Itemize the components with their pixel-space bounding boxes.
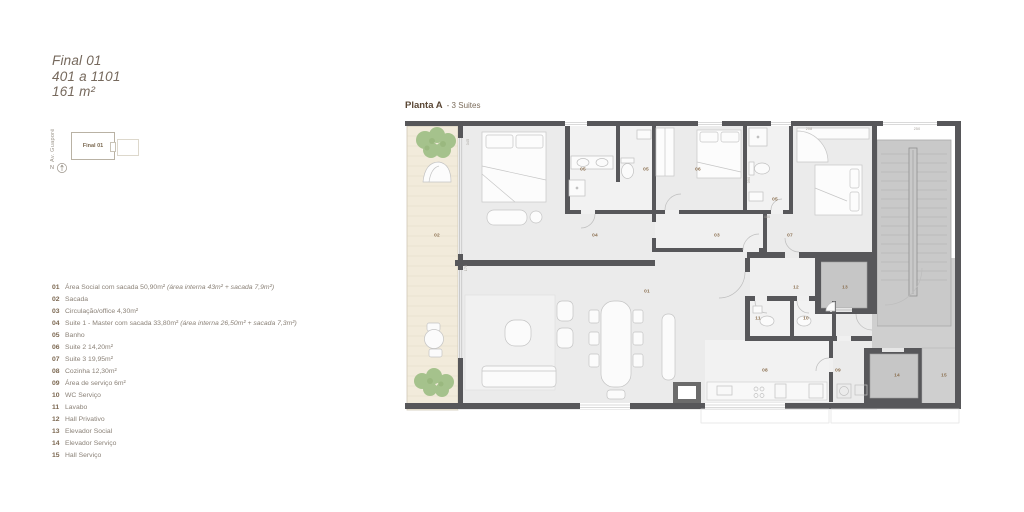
legend-item-text: Lavabo xyxy=(65,404,87,411)
legend-item-text: Hall Privativo xyxy=(65,416,105,423)
north-arrow-icon xyxy=(56,162,68,174)
legend-item-number: 09 xyxy=(52,378,65,390)
legend-item-number: 12 xyxy=(52,414,65,426)
suite1-furniture xyxy=(482,132,546,225)
legend-item-number: 02 xyxy=(52,294,65,306)
legend-item: 14Elevador Serviço xyxy=(52,438,352,450)
room-label-banho-a: 05 xyxy=(580,168,586,173)
keyplan-adjacent-unit-box xyxy=(117,139,139,156)
legend-item: 13Elevador Social xyxy=(52,426,352,438)
legend-item-number: 08 xyxy=(52,366,65,378)
legend-item-number: 13 xyxy=(52,426,65,438)
legend-item-text: Suite 2 14,20m² xyxy=(65,344,113,351)
legend-item-number: 10 xyxy=(52,390,65,402)
street-label: Av. Guaporé xyxy=(50,122,56,162)
room-label-circulacao: 03 xyxy=(714,234,720,239)
legend-item-number: 03 xyxy=(52,306,65,318)
dimension-mark: 170 xyxy=(464,265,468,272)
room-label-banho-c: 05 xyxy=(772,198,778,203)
legend-item-number: 04 xyxy=(52,318,65,330)
plan-title-sub: - 3 Suites xyxy=(447,101,481,110)
room-label-suite2: 06 xyxy=(695,168,701,173)
lower-ledge-outline xyxy=(701,409,959,423)
legend-item-text: Elevador Social xyxy=(65,428,112,435)
legend-item-note: (área interna 26,50m² + sacada 7,3m²) xyxy=(180,320,297,327)
room-label-elevador-servico: 14 xyxy=(894,374,900,379)
legend-item-number: 05 xyxy=(52,330,65,342)
legend-item: 06Suite 2 14,20m² xyxy=(52,342,352,354)
keyplan-unit-box: Final 01 xyxy=(71,132,115,160)
room-label-servico: 09 xyxy=(835,369,841,374)
legend-item: 05Banho xyxy=(52,330,352,342)
legend-item-text: Banho xyxy=(65,332,85,339)
room-label-hall-privativo: 12 xyxy=(793,286,799,291)
legend-item-note: (área interna 43m² + sacada 7,9m²) xyxy=(167,284,274,291)
room-label-suite1: 04 xyxy=(592,234,598,239)
dimension-mark: 480 xyxy=(764,215,771,219)
legend-item-text: Circulação/office 4,30m² xyxy=(65,308,138,315)
room-label-suite3: 07 xyxy=(787,234,793,239)
legend-item-text: Hall Serviço xyxy=(65,452,101,459)
legend-item-number: 15 xyxy=(52,450,65,462)
dimension-mark: 208 xyxy=(806,127,813,131)
legend-item: 12Hall Privativo xyxy=(52,414,352,426)
legend-item: 01Área Social com sacada 50,90m² (área i… xyxy=(52,282,352,294)
legend-item: 10WC Serviço xyxy=(52,390,352,402)
room-label-sacada: 02 xyxy=(434,234,440,239)
dimension-mark: 090 xyxy=(747,177,751,184)
legend-item: 15Hall Serviço xyxy=(52,450,352,462)
room-label-elevador-social: 13 xyxy=(842,286,848,291)
floor-plan-drawing xyxy=(405,118,965,428)
north-label: N xyxy=(50,165,54,171)
legend-item-text: Suite 3 19,95m² xyxy=(65,356,113,363)
legend-item: 03Circulação/office 4,30m² xyxy=(52,306,352,318)
dimension-mark: 250 xyxy=(914,127,921,131)
legend-item-number: 07 xyxy=(52,354,65,366)
legend-item-text: Cozinha 12,30m² xyxy=(65,368,117,375)
legend-item-number: 14 xyxy=(52,438,65,450)
legend-item-number: 06 xyxy=(52,342,65,354)
legend-item: 08Cozinha 12,30m² xyxy=(52,366,352,378)
room-label-wc: 10 xyxy=(803,317,809,322)
legend: 01Área Social com sacada 50,90m² (área i… xyxy=(52,282,352,462)
legend-item-text: Elevador Serviço xyxy=(65,440,116,447)
legend-item: 09Área de serviço 6m² xyxy=(52,378,352,390)
room-label-cozinha: 08 xyxy=(762,369,768,374)
legend-item-text: Suite 1 - Master com sacada 33,80m² xyxy=(65,320,180,327)
legend-item: 07Suite 3 19,95m² xyxy=(52,354,352,366)
legend-item-number: 11 xyxy=(52,402,65,414)
unit-area: 161 m² xyxy=(52,84,121,100)
room-label-hall-servico: 15 xyxy=(941,374,947,379)
legend-item-text: Área Social com sacada 50,90m² xyxy=(65,284,167,291)
plan-title: Planta A- 3 Suites xyxy=(405,100,480,111)
legend-item: 11Lavabo xyxy=(52,402,352,414)
unit-title-block: Final 01 401 a 1101 161 m² xyxy=(52,53,121,100)
legend-item-text: Sacada xyxy=(65,296,88,303)
legend-item: 04Suite 1 - Master com sacada 33,80m² (á… xyxy=(52,318,352,330)
legend-item-text: Área de serviço 6m² xyxy=(65,380,126,387)
plan-title-main: Planta A xyxy=(405,100,443,111)
dimension-mark: 345 xyxy=(466,139,470,146)
floor-plan: 01 02 03 04 05 05 05 06 07 08 09 10 11 1… xyxy=(405,118,965,428)
legend-item: 02Sacada xyxy=(52,294,352,306)
legend-item-number: 01 xyxy=(52,282,65,294)
unit-title: Final 01 xyxy=(52,53,121,69)
north-compass: N xyxy=(50,162,68,174)
room-label-banho-b: 05 xyxy=(643,168,649,173)
room-label-area-social: 01 xyxy=(644,290,650,295)
room-label-lavabo: 11 xyxy=(755,317,760,322)
unit-floors: 401 a 1101 xyxy=(52,69,121,85)
legend-item-text: WC Serviço xyxy=(65,392,101,399)
